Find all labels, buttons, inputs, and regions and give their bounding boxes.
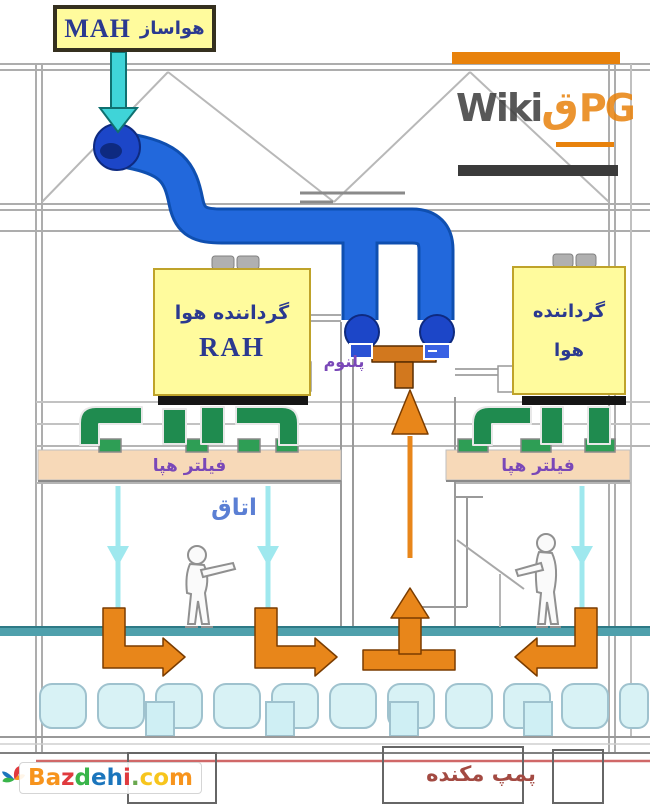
shaft-up-arrowhead: [392, 390, 428, 434]
ceiling-support-bars: [300, 193, 405, 202]
wikipg-watermark: Wiki ق PG: [452, 52, 624, 176]
hvac-cleanroom-diagram: هواساز MAH گرداننده هوا RAH گرداننده هوا…: [0, 0, 650, 809]
plenum-label: پلنوم: [316, 352, 372, 371]
floor-return-arrow-mid: [255, 608, 337, 676]
rah-label-fa: گرداننده هوا: [175, 302, 289, 324]
return-tee-arrowhead: [391, 588, 429, 618]
hepa-filter-label-right: فیلتر هپا: [446, 452, 630, 480]
right-unit-label-line2: هوا: [554, 340, 584, 361]
room-label: اتاق: [192, 495, 276, 521]
right-unit-label-line1: گرداننده: [533, 301, 605, 322]
floor-return-arrow-left: [103, 608, 185, 676]
wikipg-accent-glyph: ق: [541, 82, 579, 131]
subfloor-plenum-blocks: [40, 684, 648, 736]
wikipg-logo-text: Wiki ق PG: [452, 82, 624, 131]
mah-label-en: MAH: [64, 14, 131, 44]
ahu-base-bars: [158, 396, 626, 405]
raised-floor: [0, 627, 650, 636]
hepa-filter-label-left: فیلتر هپا: [38, 452, 341, 480]
right-air-handler-label-box: گرداننده هوا: [512, 266, 626, 395]
worker-figure-right: [457, 534, 561, 627]
rah-label-en: RAH: [199, 332, 265, 363]
bazdehi-watermark: Bazdehi.com: [2, 750, 202, 806]
mah-unit-label-box: هواساز MAH: [53, 5, 216, 52]
suction-pump-label: پمپ مکنده: [396, 762, 566, 786]
wikipg-bottom-bar: [458, 165, 618, 176]
wikipg-text-orange: PG: [579, 86, 634, 130]
mah-label-fa: هواساز: [140, 18, 205, 39]
wikipg-underline: [556, 142, 614, 147]
wikipg-top-bar: [452, 52, 620, 64]
rah-unit-label-box: گرداننده هوا RAH: [153, 268, 311, 396]
worker-figure-left: [185, 546, 235, 627]
laminar-flow-arrows: [107, 486, 593, 624]
bazdehi-text: Bazdehi.com: [19, 762, 202, 794]
wikipg-text-dark: Wiki: [456, 86, 541, 130]
